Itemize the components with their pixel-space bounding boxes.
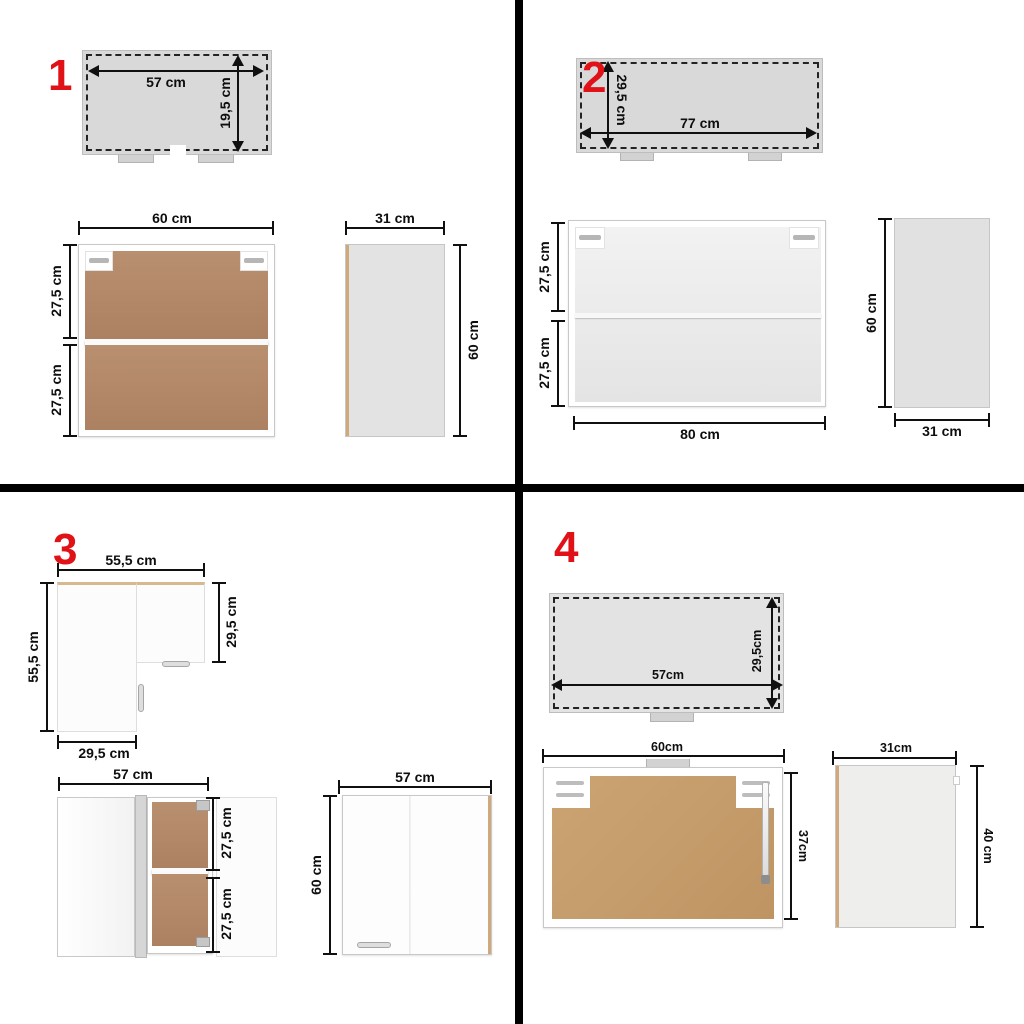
side-width-dim-label: 31cm (880, 741, 912, 755)
panel-3-number: 3 (53, 528, 77, 572)
product-dimension-sheet: 1 57 cm 19,5 cm 60 cm 27,5 cm 27,5 cm 31… (0, 0, 1024, 1024)
upper-height-dim-line (212, 797, 214, 871)
cabinet-top-view (549, 593, 784, 713)
lower-height-dim-line (557, 320, 559, 407)
lower-height-dim-line (69, 344, 71, 437)
front-width-dim-line (573, 422, 826, 424)
side-height-dim-line (884, 218, 886, 408)
depth-dim-line (237, 57, 239, 150)
panel-4-number: 4 (554, 526, 578, 570)
left-depth-dim-label: 55,5 cm (25, 631, 41, 682)
open-width-dim-label: 57 cm (113, 766, 153, 782)
side-width-dim-line (345, 227, 445, 229)
right-depth-dim-line (218, 582, 220, 663)
top-width-dim-label: 55,5 cm (105, 552, 156, 568)
bottom-width-dim-label: 29,5 cm (78, 745, 129, 761)
upper-height-dim-line (69, 244, 71, 339)
lower-height-dim-label: 27,5 cm (218, 888, 234, 939)
depth-dim-line (607, 63, 609, 147)
upper-height-dim-label: 27,5 cm (218, 807, 234, 858)
panel-4: 4 57cm 29,5cm 60cm 37cm 31cm (0, 0, 1024, 1024)
depth-dim-label: 29,5cm (750, 630, 764, 672)
front-width-dim-line (338, 786, 492, 788)
lower-height-dim-label: 27,5 cm (48, 364, 64, 415)
front-height-dim-line (329, 795, 331, 955)
upper-height-dim-line (557, 222, 559, 312)
front-width-dim-label: 80 cm (680, 426, 720, 442)
edge-band (836, 766, 839, 927)
side-width-dim-line (894, 419, 990, 421)
side-height-dim-label: 60 cm (863, 293, 879, 333)
panel-1-number: 1 (48, 54, 72, 98)
width-dim-line (582, 132, 815, 134)
mount-notch (170, 145, 186, 156)
gas-strut (762, 782, 769, 876)
horizontal-divider (0, 484, 1024, 492)
depth-dim-label: 19,5 cm (217, 77, 233, 128)
side-width-dim-label: 31 cm (375, 210, 415, 226)
side-height-dim-label: 40 cm (981, 828, 995, 863)
side-height-dim-line (976, 765, 978, 928)
front-width-dim-line (542, 755, 785, 757)
front-width-dim-label: 57 cm (395, 769, 435, 785)
front-height-dim-label: 37cm (796, 830, 810, 862)
bottom-width-dim-line (57, 741, 137, 743)
front-width-dim-label: 60 cm (152, 210, 192, 226)
left-depth-dim-line (46, 582, 48, 732)
depth-dim-label: 29,5 cm (614, 74, 630, 125)
upper-height-dim-label: 27,5 cm (48, 265, 64, 316)
depth-dim-line (771, 599, 773, 707)
upper-height-dim-label: 27,5 cm (536, 241, 552, 292)
top-width-dim-line (57, 569, 205, 571)
width-dim-label: 57 cm (146, 74, 186, 90)
wall-bracket (650, 713, 694, 722)
width-dim-line (553, 684, 781, 686)
front-height-dim-line (790, 772, 792, 920)
right-depth-dim-label: 29,5 cm (223, 596, 239, 647)
vertical-divider (515, 0, 523, 1024)
front-width-dim-line (78, 227, 274, 229)
side-width-dim-line (832, 757, 957, 759)
lower-height-dim-line (212, 877, 214, 953)
width-dim-label: 57cm (652, 668, 684, 682)
mount-tab (953, 776, 960, 785)
panel-2-number: 2 (582, 56, 606, 100)
dashed-outline (553, 597, 780, 709)
front-height-dim-label: 60 cm (308, 855, 324, 895)
cabinet-front-view (543, 767, 783, 928)
hinge-hardware-left (556, 781, 584, 797)
lower-height-dim-label: 27,5 cm (536, 337, 552, 388)
side-height-dim-label: 60 cm (465, 320, 481, 360)
side-height-dim-line (459, 244, 461, 437)
open-width-dim-line (58, 783, 209, 785)
width-dim-label: 77 cm (680, 115, 720, 131)
side-width-dim-label: 31 cm (922, 423, 962, 439)
cabinet-side-view (835, 765, 956, 928)
front-width-dim-label: 60cm (651, 740, 683, 754)
